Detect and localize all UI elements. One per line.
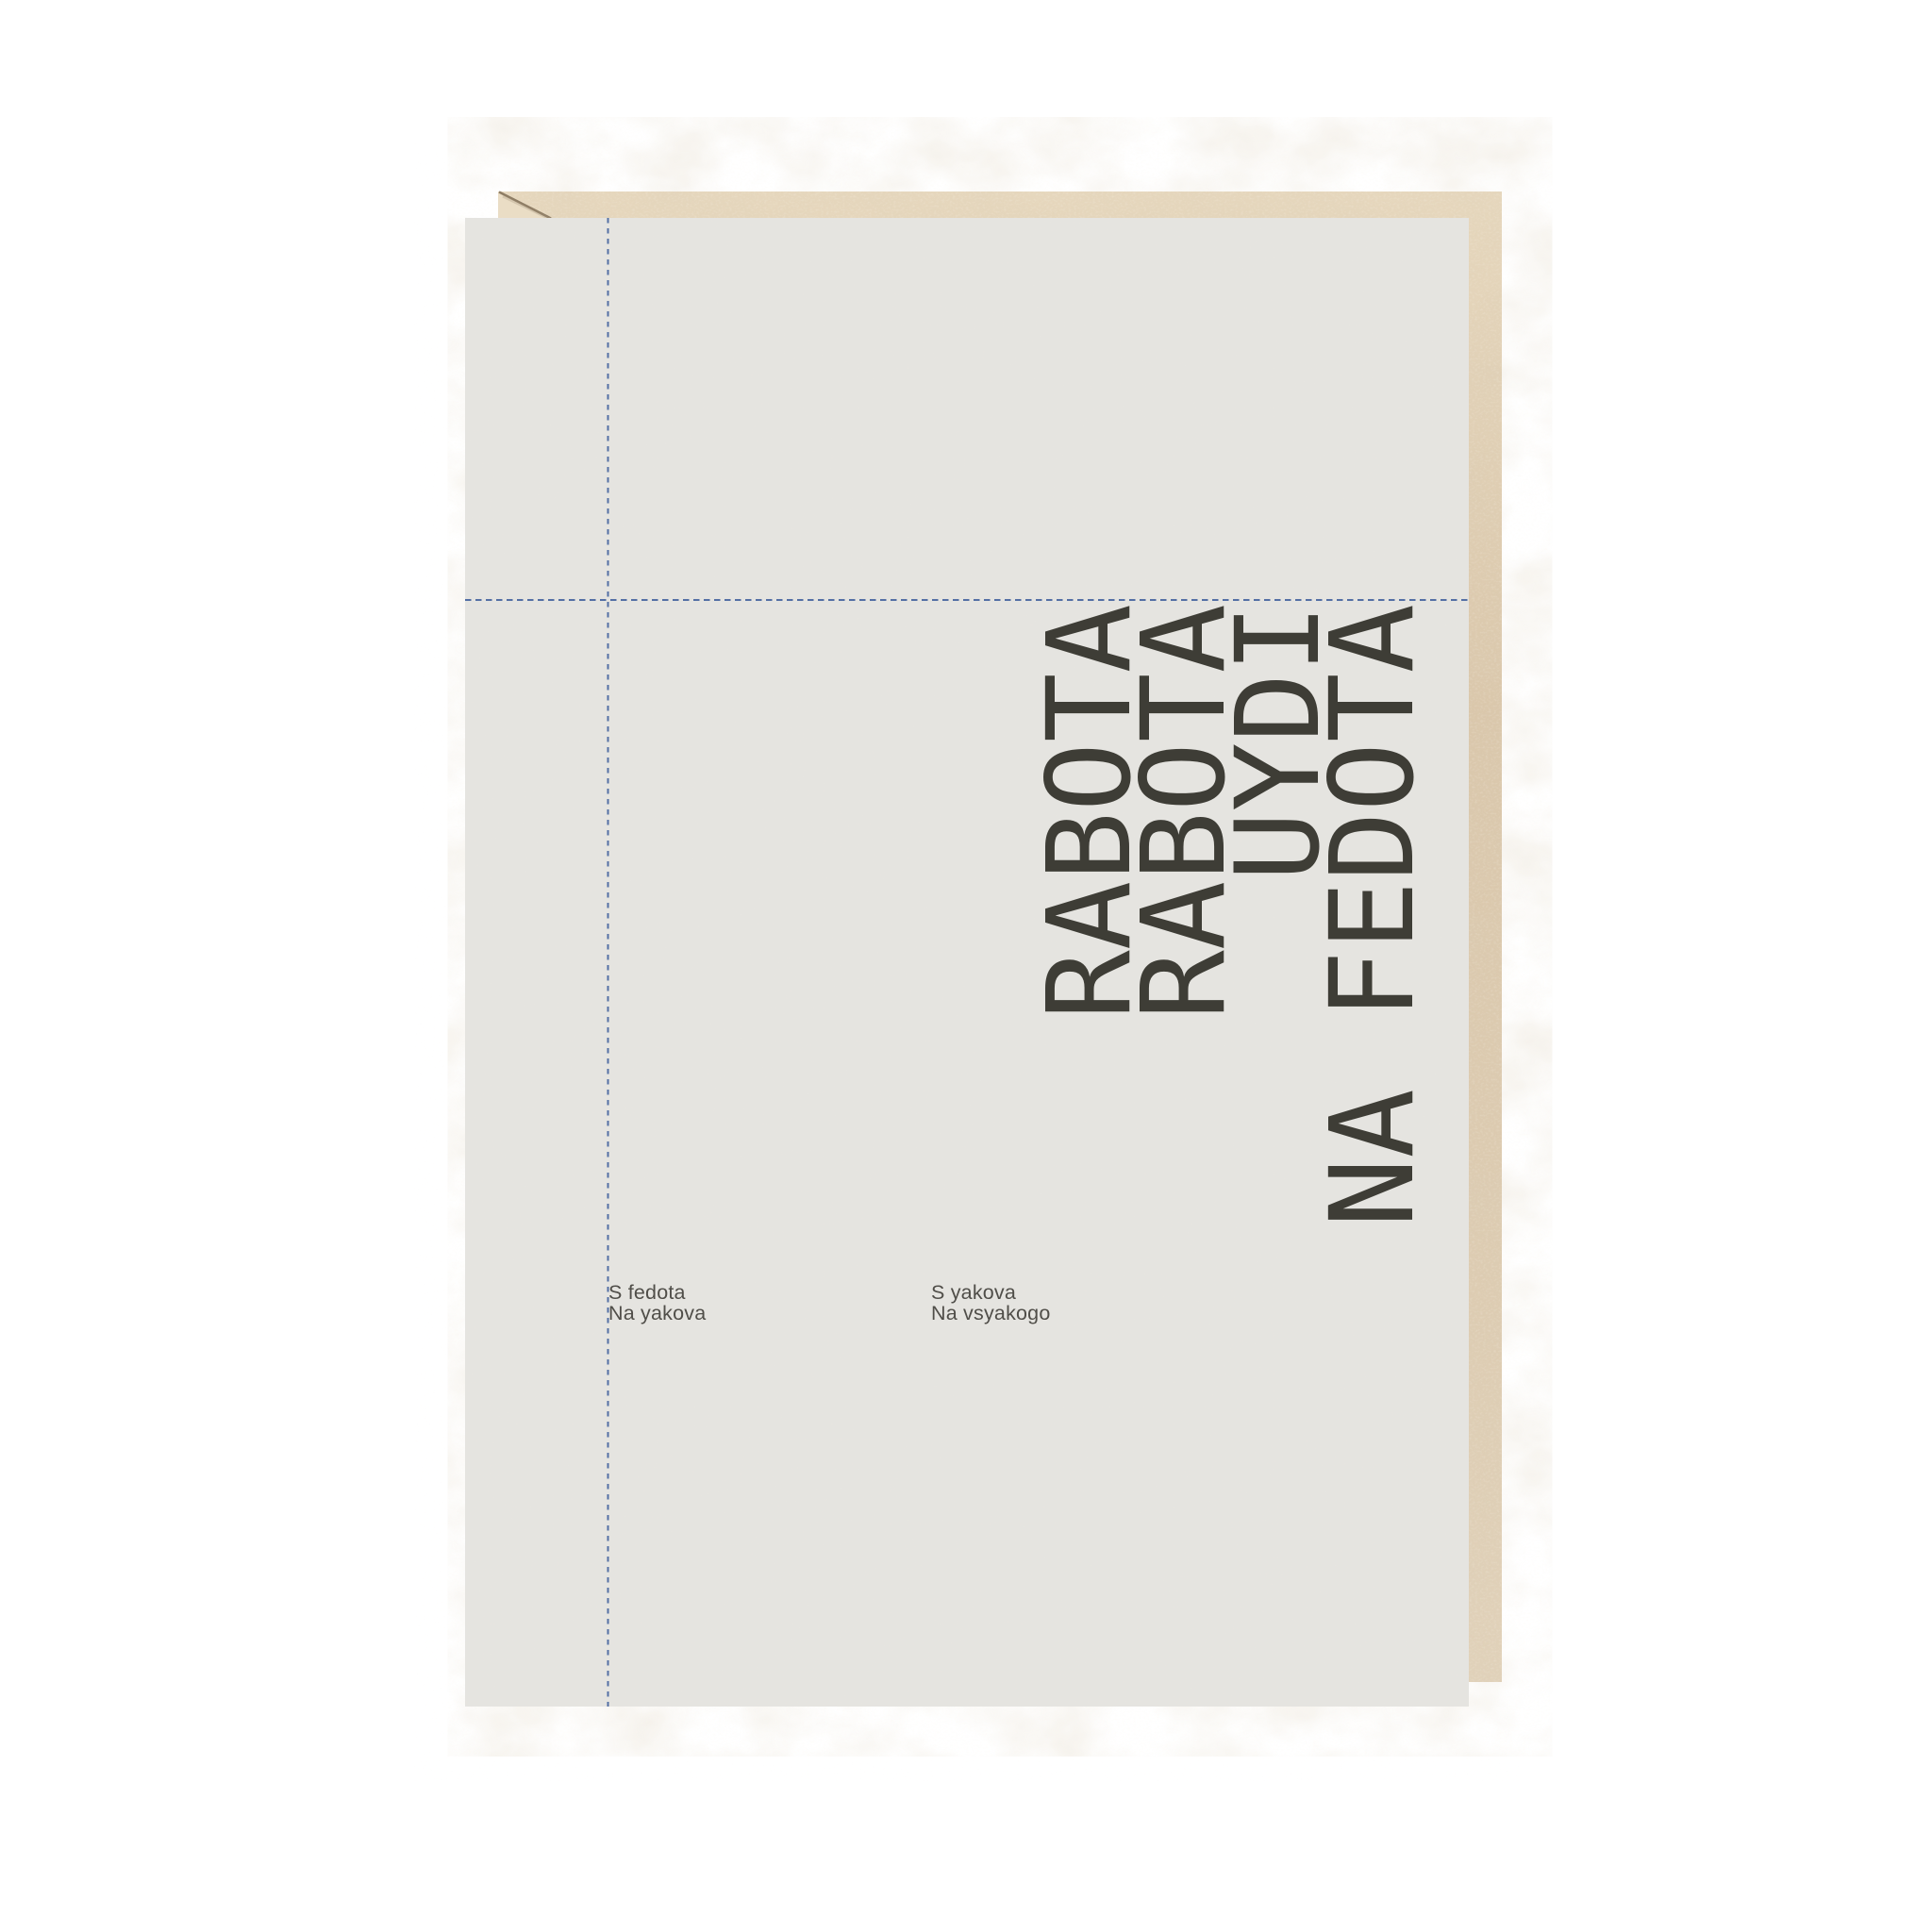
mockup-scene: RABOTA RABOTA UYDI NA FEDOTA S fedota Na… [0, 0, 1932, 1932]
poster-mockup-canvas: RABOTA RABOTA UYDI NA FEDOTA S fedota Na… [0, 0, 1932, 1932]
caption-right-line-1: S yakova [931, 1281, 1016, 1304]
caption-left-line-1: S fedota [608, 1281, 686, 1304]
caption-left-line-2: Na yakova [608, 1302, 706, 1324]
headline-line-4: NA FEDOTA [1306, 604, 1440, 1227]
caption-right-line-2: Na vsyakogo [931, 1302, 1051, 1324]
